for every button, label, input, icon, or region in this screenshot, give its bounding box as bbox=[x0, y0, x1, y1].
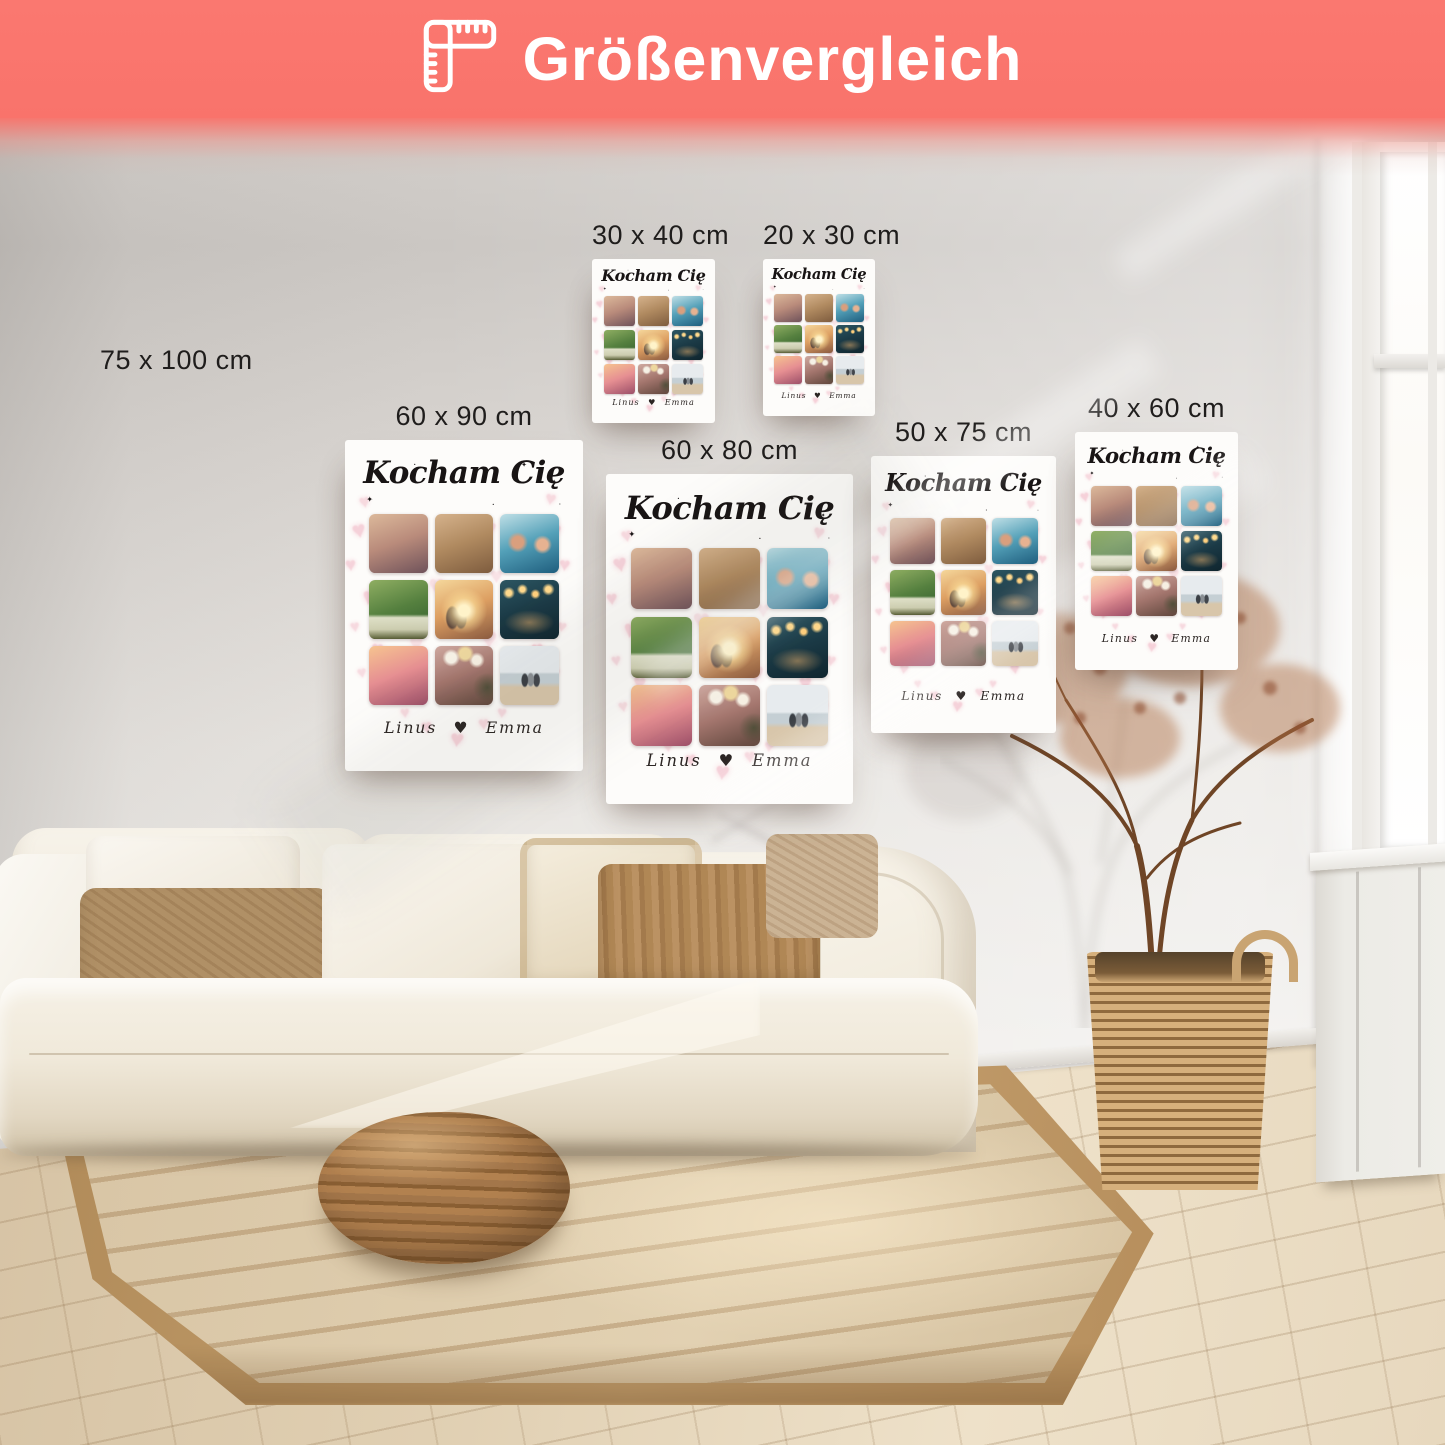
photo-grid bbox=[774, 294, 864, 384]
sparkle-icon: • bbox=[832, 289, 833, 291]
size-option-40x60: 40 x 60 cm♥♥♥♥♥♥♥♥♥♥♥♥♥♥♥♥♥♥♥♥♥♥♥♥♥♥♥♥♥♥… bbox=[1075, 392, 1238, 670]
sparkle-icon: • bbox=[559, 503, 560, 507]
garden-dinner-photo bbox=[774, 325, 802, 353]
sparkle-icon: • bbox=[864, 289, 865, 291]
pool-party-photo bbox=[767, 548, 828, 609]
size-option-30x40: 30 x 40 cm♥♥♥♥♥♥♥♥♥♥♥♥♥♥♥♥♥♥♥♥♥♥♥♥♥♥♥♥♥♥… bbox=[592, 219, 715, 423]
size-option-75x100: 75 x 100 cm bbox=[100, 344, 240, 384]
kocham-cie-poster: ♥♥♥♥♥♥♥♥♥♥♥♥♥♥♥♥♥♥♥♥♥♥♥♥♥♥♥♥♥♥✦✦✦•••Koch… bbox=[871, 456, 1056, 733]
heart-decoration: ♥ bbox=[863, 314, 869, 323]
heart-decoration: ♥ bbox=[345, 555, 357, 575]
party-balloons-photo bbox=[805, 356, 833, 384]
garden-dinner-photo bbox=[369, 580, 428, 639]
garden-dinner-photo bbox=[1091, 531, 1131, 571]
heart-decoration: ♥ bbox=[606, 589, 619, 610]
sparkle-icon: • bbox=[828, 537, 829, 541]
sparkler-night-photo bbox=[992, 570, 1038, 616]
sparkle-icon: • bbox=[986, 509, 987, 512]
friends-cheering-photo bbox=[369, 514, 428, 573]
party-balloons-photo bbox=[699, 685, 760, 746]
sparkle-icon: ✦ bbox=[773, 286, 776, 290]
rug-fold bbox=[121, 1346, 1120, 1406]
garden-dinner-photo bbox=[631, 617, 692, 678]
heart-decoration: ♥ bbox=[1078, 488, 1091, 506]
couple-names: Linus ♥ Emma bbox=[345, 718, 583, 737]
kocham-cie-poster: ♥♥♥♥♥♥♥♥♥♥♥♥♥♥♥♥♥♥♥♥♥♥♥♥♥♥♥♥♥♥✦✦✦•••Koch… bbox=[606, 474, 853, 804]
heart-decoration: ♥ bbox=[356, 664, 369, 682]
elephant-walk-photo bbox=[805, 294, 833, 322]
cabinet-door-seam bbox=[1356, 872, 1359, 1172]
heart-decoration: ♥ bbox=[875, 522, 890, 542]
beige-pattern-pillow bbox=[766, 834, 878, 938]
elephant-walk-photo bbox=[638, 296, 668, 326]
couple-names: Linus ♥ Emma bbox=[606, 751, 853, 770]
heart-decoration: ♥ bbox=[765, 343, 771, 351]
sunset-couple-photo bbox=[638, 330, 668, 360]
sparkle-icon: • bbox=[668, 290, 669, 292]
heart-decoration: ♥ bbox=[765, 296, 774, 308]
size-label: 20 x 30 cm bbox=[763, 219, 875, 251]
sunset-beach-dance-photo bbox=[631, 685, 692, 746]
pool-party-photo bbox=[1181, 486, 1221, 526]
wicker-pouf bbox=[318, 1112, 570, 1264]
sparkle-icon: • bbox=[759, 537, 761, 541]
sofa bbox=[0, 818, 978, 1163]
sparkle-icon: ✦ bbox=[888, 503, 893, 509]
kocham-cie-poster: ♥♥♥♥♥♥♥♥♥♥♥♥♥♥♥♥♥♥♥♥♥♥♥♥♥♥♥♥♥♥✦✦✦•••Koch… bbox=[763, 259, 875, 416]
sparkler-night-photo bbox=[1181, 531, 1221, 571]
heart-decoration: ♥ bbox=[611, 552, 630, 579]
heart-decoration: ♥ bbox=[617, 698, 630, 717]
couple-names: Linus ♥ Emma bbox=[871, 689, 1056, 703]
heart-decoration: ♥ bbox=[610, 652, 623, 671]
heart-decoration: ♥ bbox=[543, 489, 557, 510]
size-label: 60 x 80 cm bbox=[606, 434, 853, 466]
elephant-walk-photo bbox=[941, 518, 987, 564]
elephant-walk-photo bbox=[1136, 486, 1176, 526]
party-balloons-photo bbox=[435, 646, 494, 705]
sparkle-icon: • bbox=[1176, 477, 1177, 480]
family-beach-photo bbox=[500, 646, 559, 705]
heart-decoration: ♥ bbox=[558, 555, 571, 575]
heart-decoration: ♥ bbox=[827, 589, 840, 610]
sparkle-icon: • bbox=[1038, 509, 1039, 512]
friends-cheering-photo bbox=[604, 296, 634, 326]
sparkler-night-photo bbox=[500, 580, 559, 639]
pool-party-photo bbox=[500, 514, 559, 573]
window bbox=[1352, 142, 1445, 858]
kocham-cie-poster: ♥♥♥♥♥♥♥♥♥♥♥♥♥♥♥♥♥♥♥♥♥♥♥♥♥♥♥♥♥♥✦✦✦•••Koch… bbox=[1075, 432, 1238, 670]
size-label: 60 x 90 cm bbox=[345, 400, 583, 432]
party-balloons-photo bbox=[941, 621, 987, 667]
kocham-cie-poster: ♥♥♥♥♥♥♥♥♥♥♥♥♥♥♥♥♥♥♥♥♥♥♥♥♥♥♥♥♥♥✦✦✦•••Koch… bbox=[345, 440, 583, 771]
heart-decoration: ♥ bbox=[1221, 515, 1230, 529]
sunset-beach-dance-photo bbox=[1091, 576, 1131, 616]
heart-decoration: ♥ bbox=[592, 316, 598, 326]
friends-cheering-photo bbox=[890, 518, 936, 564]
heart-decoration: ♥ bbox=[1075, 515, 1083, 529]
sunset-couple-photo bbox=[699, 617, 760, 678]
photo-grid bbox=[369, 514, 559, 704]
pool-party-photo bbox=[672, 296, 702, 326]
family-beach-photo bbox=[767, 685, 828, 746]
sunset-beach-dance-photo bbox=[604, 364, 634, 394]
sparkle-icon: ✦ bbox=[628, 530, 635, 538]
sparkle-icon: • bbox=[703, 290, 704, 292]
cabinet-door-seam bbox=[1418, 867, 1421, 1167]
photo-grid bbox=[1091, 486, 1221, 616]
family-beach-photo bbox=[672, 364, 702, 394]
photo-grid bbox=[604, 296, 702, 394]
sunset-couple-photo bbox=[435, 580, 494, 639]
sparkler-night-photo bbox=[836, 325, 864, 353]
heart-decoration: ♥ bbox=[349, 618, 361, 636]
friends-cheering-photo bbox=[1091, 486, 1131, 526]
poster-title: Kocham Cię bbox=[763, 266, 875, 283]
heart-decoration: ♥ bbox=[350, 518, 369, 544]
sparkler-night-photo bbox=[672, 330, 702, 360]
sunset-beach-dance-photo bbox=[774, 356, 802, 384]
friends-cheering-photo bbox=[631, 548, 692, 609]
size-label: 75 x 100 cm bbox=[100, 344, 240, 376]
heart-decoration: ♥ bbox=[856, 282, 863, 292]
family-beach-photo bbox=[992, 621, 1038, 667]
couple-names: Linus ♥ Emma bbox=[592, 397, 715, 407]
sunset-couple-photo bbox=[941, 570, 987, 616]
heart-decoration: ♥ bbox=[594, 298, 604, 312]
sparkle-icon: ✦ bbox=[603, 287, 607, 291]
heart-decoration: ♥ bbox=[763, 314, 769, 323]
header-title: Größenvergleich bbox=[523, 24, 1023, 94]
size-option-60x90: 60 x 90 cm♥♥♥♥♥♥♥♥♥♥♥♥♥♥♥♥♥♥♥♥♥♥♥♥♥♥♥♥♥♥… bbox=[345, 400, 583, 771]
poster-title: Kocham Cię bbox=[592, 266, 715, 285]
header-banner: Größenvergleich bbox=[0, 0, 1445, 118]
heart-decoration: ♥ bbox=[768, 365, 774, 374]
heart-decoration: ♥ bbox=[871, 553, 880, 569]
ruler-icon bbox=[423, 19, 497, 93]
heart-decoration: ♥ bbox=[594, 347, 600, 356]
heart-decoration: ♥ bbox=[702, 316, 709, 326]
party-balloons-photo bbox=[1136, 576, 1176, 616]
couple-names: Linus ♥ Emma bbox=[763, 391, 875, 400]
size-label: 50 x 75 cm bbox=[871, 416, 1056, 448]
poster-title: Kocham Cię bbox=[871, 468, 1056, 497]
heart-decoration: ♥ bbox=[1077, 560, 1085, 572]
sparkle-icon: ✦ bbox=[1090, 472, 1095, 478]
heart-decoration: ♥ bbox=[597, 370, 604, 379]
pool-party-photo bbox=[992, 518, 1038, 564]
family-beach-photo bbox=[836, 356, 864, 384]
sparkle-icon: ✦ bbox=[366, 496, 373, 504]
size-label: 40 x 60 cm bbox=[1075, 392, 1238, 424]
window-mullion bbox=[1428, 142, 1437, 858]
kocham-cie-poster: ♥♥♥♥♥♥♥♥♥♥♥♥♥♥♥♥♥♥♥♥♥♥♥♥♥♥♥♥♥♥✦✦✦•••Koch… bbox=[592, 259, 715, 423]
sunset-beach-dance-photo bbox=[890, 621, 936, 667]
size-label: 30 x 40 cm bbox=[592, 219, 715, 251]
pool-party-photo bbox=[836, 294, 864, 322]
sunset-beach-dance-photo bbox=[369, 646, 428, 705]
garden-dinner-photo bbox=[890, 570, 936, 616]
size-option-50x75: 50 x 75 cm♥♥♥♥♥♥♥♥♥♥♥♥♥♥♥♥♥♥♥♥♥♥♥♥♥♥♥♥♥♥… bbox=[871, 416, 1056, 733]
heart-decoration: ♥ bbox=[1211, 467, 1221, 481]
white-sideboard bbox=[1316, 843, 1445, 1182]
poster-title: Kocham Cię bbox=[606, 489, 853, 527]
sparkler-night-photo bbox=[767, 617, 828, 678]
heart-decoration: ♥ bbox=[1037, 553, 1047, 569]
family-beach-photo bbox=[1181, 576, 1221, 616]
heart-decoration: ♥ bbox=[879, 644, 889, 658]
photo-grid bbox=[890, 518, 1038, 666]
poster-title: Kocham Cię bbox=[1075, 443, 1238, 468]
photo-grid bbox=[631, 548, 829, 746]
garden-dinner-photo bbox=[604, 330, 634, 360]
heart-decoration: ♥ bbox=[1082, 593, 1091, 605]
couple-names: Linus ♥ Emma bbox=[1075, 632, 1238, 645]
sunset-couple-photo bbox=[1136, 531, 1176, 571]
party-balloons-photo bbox=[638, 364, 668, 394]
sparkle-icon: • bbox=[1222, 477, 1223, 479]
heart-decoration: ♥ bbox=[874, 605, 883, 619]
sunset-couple-photo bbox=[805, 325, 833, 353]
poster-title: Kocham Cię bbox=[345, 455, 583, 491]
size-comparison-scene: 75 x 100 cm 30 x 40 cm♥♥♥♥♥♥♥♥♥♥♥♥♥♥♥♥♥♥… bbox=[0, 0, 1445, 1445]
sparkle-icon: • bbox=[493, 503, 495, 507]
size-option-60x80: 60 x 80 cm♥♥♥♥♥♥♥♥♥♥♥♥♥♥♥♥♥♥♥♥♥♥♥♥♥♥♥♥♥♥… bbox=[606, 434, 853, 804]
size-option-20x30: 20 x 30 cm♥♥♥♥♥♥♥♥♥♥♥♥♥♥♥♥♥♥♥♥♥♥♥♥♥♥♥♥♥♥… bbox=[763, 219, 875, 416]
elephant-walk-photo bbox=[699, 548, 760, 609]
elephant-walk-photo bbox=[435, 514, 494, 573]
wicker-basket bbox=[1083, 952, 1277, 1190]
friends-cheering-photo bbox=[774, 294, 802, 322]
heart-decoration: ♥ bbox=[1025, 497, 1036, 513]
